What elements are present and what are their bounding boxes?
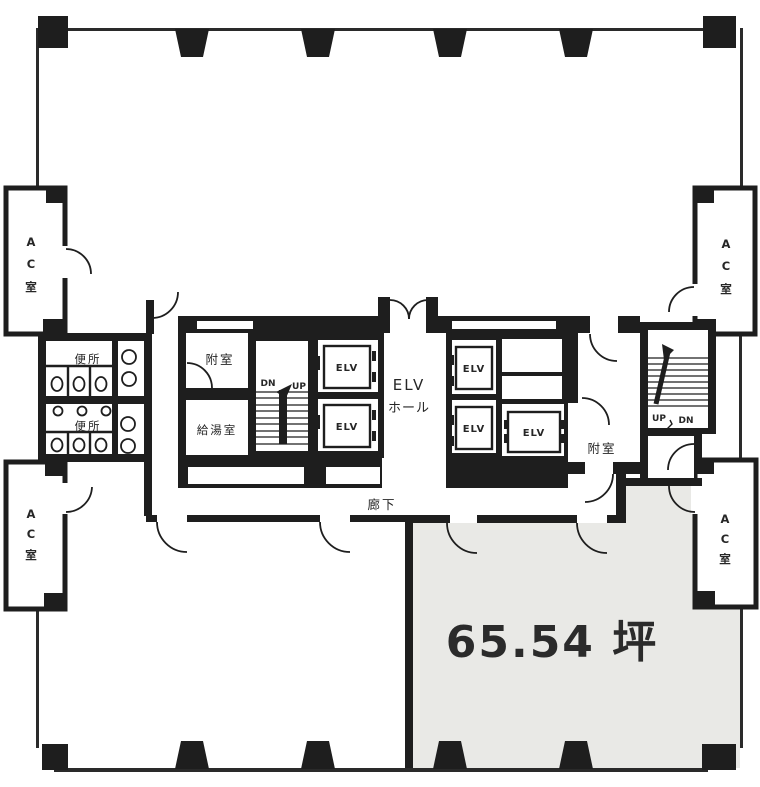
tenant-area-size-label: 65.54 坪 — [446, 617, 659, 668]
room-label-vestibule-left: 附室 — [205, 352, 234, 367]
room-label-vestibule-right: 附室 — [587, 441, 616, 456]
room-label-ac: A — [721, 512, 730, 526]
stairs-right: UP DN — [640, 322, 716, 434]
room-label-corridor: 廊下 — [367, 497, 396, 512]
room-label-ac: 室 — [25, 280, 37, 294]
room-label-ac: C — [27, 527, 35, 541]
room-label-ac: C — [722, 259, 730, 273]
stair-label-up: UP — [292, 382, 306, 392]
room-label-ac: A — [722, 237, 731, 251]
room-label-ac: A — [27, 235, 36, 249]
corner-column — [38, 16, 68, 48]
stairs-left: DN UP — [248, 333, 316, 458]
room-label-ac: C — [721, 532, 729, 546]
elevator-label: ELV — [463, 364, 486, 375]
elevator-label: ELV — [336, 363, 359, 374]
elevator-bank-left: ELV ELV — [312, 333, 384, 458]
floor-plan-page: A C 室 A C 室 A C 室 A C 室 — [0, 0, 760, 787]
elevator-label: ELV — [523, 428, 546, 439]
elevator-label: ELV — [336, 422, 359, 433]
room-label-kitchenette: 給湯室 — [197, 423, 238, 437]
stair-label-dn: DN — [260, 379, 275, 389]
room-label-ac: 室 — [25, 548, 37, 562]
corner-column — [703, 16, 736, 48]
corner-column — [42, 744, 68, 770]
facade-column — [301, 741, 335, 769]
stair-label-dn: DN — [678, 416, 693, 426]
room-label-ac: A — [27, 507, 36, 521]
elevator-bank-right: ELV ELV ELV — [446, 333, 568, 458]
corner-column — [702, 744, 736, 770]
room-label-ac: 室 — [719, 552, 731, 566]
elevator-label: ELV — [463, 424, 486, 435]
room-label-toilet-lower: 便所 — [75, 419, 102, 433]
room-label-ac: C — [27, 257, 35, 271]
facade-column — [301, 29, 335, 57]
facade-column — [175, 741, 209, 769]
room-label-toilet-upper: 便所 — [75, 352, 102, 366]
stair-label-up: UP — [652, 414, 666, 424]
facade-column — [175, 29, 209, 57]
facade-column — [433, 741, 467, 769]
service-room — [648, 436, 694, 478]
facade-column — [433, 29, 467, 57]
floor-plan-drawing: A C 室 A C 室 A C 室 A C 室 — [0, 0, 760, 787]
room-label-ac: 室 — [720, 282, 732, 296]
room-label-elv-hall-line2: ホール — [388, 401, 430, 416]
room-label-elv-hall-line1: ELV — [393, 376, 425, 394]
